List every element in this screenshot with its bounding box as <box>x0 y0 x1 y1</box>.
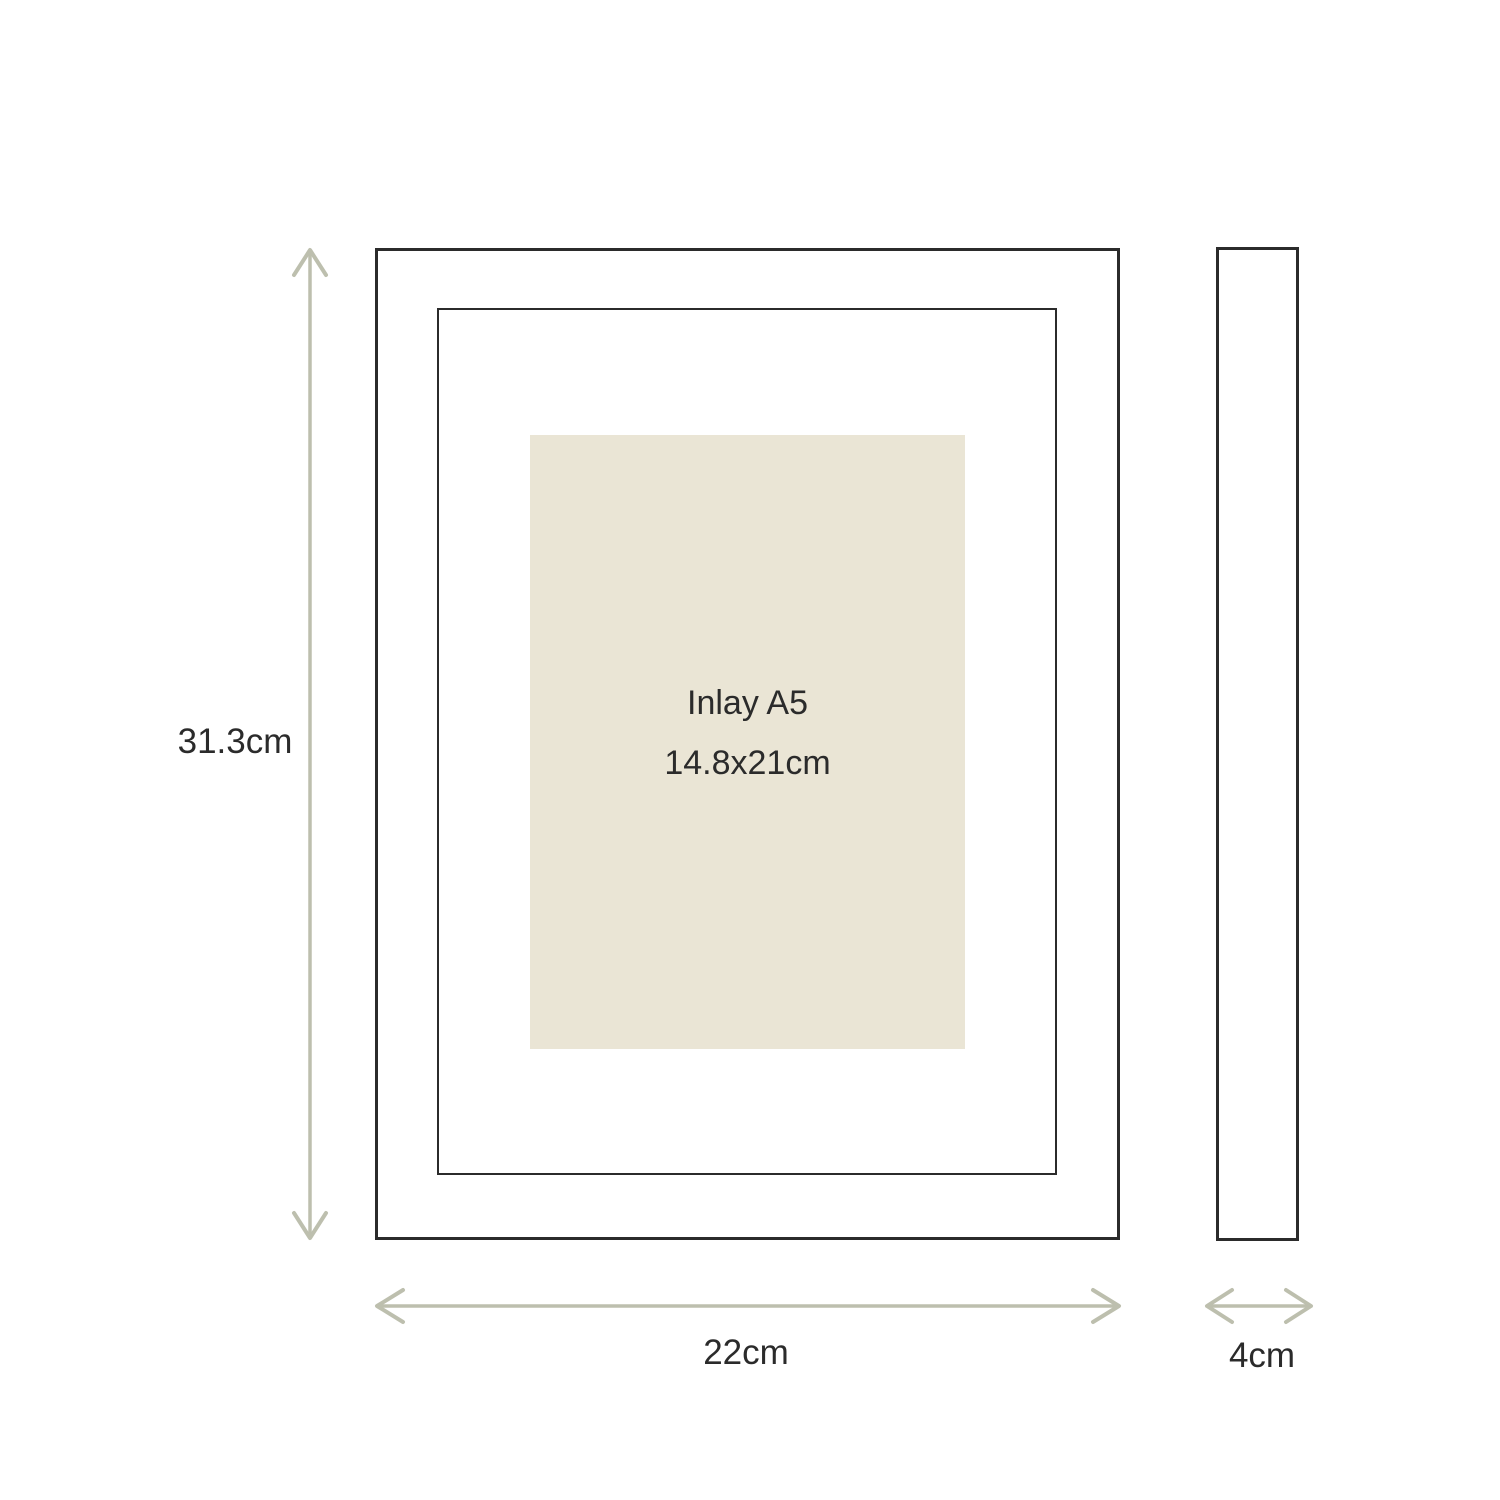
frame-side-profile <box>1216 247 1299 1241</box>
inlay-area: Inlay A5 14.8x21cm <box>530 435 965 1049</box>
depth-dimension-label: 4cm <box>1229 1336 1295 1376</box>
width-dimension-arrow <box>377 1290 1119 1322</box>
height-dimension-arrow <box>294 250 326 1238</box>
width-dimension-label: 22cm <box>703 1333 789 1373</box>
depth-dimension-arrow <box>1207 1290 1311 1322</box>
height-dimension-label: 31.3cm <box>178 722 293 762</box>
inlay-title: Inlay A5 <box>687 683 808 723</box>
frame-dimension-diagram: Inlay A5 14.8x21cm 31.3cm 22cm 4cm <box>0 0 1500 1500</box>
inlay-size: 14.8x21cm <box>664 743 830 783</box>
